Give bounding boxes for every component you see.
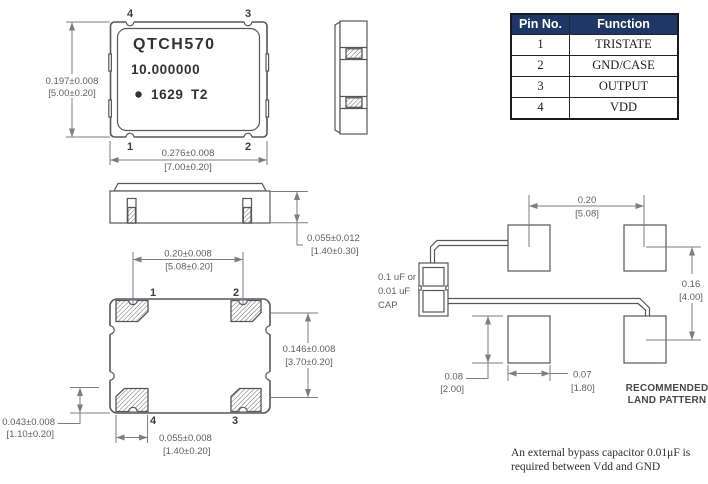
dim-mm: [5.08]	[575, 209, 599, 220]
pin-number-cell: 4	[512, 98, 570, 118]
pin-function-cell: VDD	[570, 98, 677, 118]
dim-top-view-height: 0.197±0.008 [5.00±0.20]	[46, 22, 110, 137]
pin-table-header-function: Function	[570, 15, 677, 35]
pin-function-cell: TRISTATE	[570, 35, 677, 56]
pin1-dot	[135, 91, 141, 97]
dim-mm: [4.00]	[679, 292, 703, 303]
pin-number-cell: 2	[512, 56, 570, 77]
notch	[110, 326, 114, 334]
dim-mm: [7.00±0.20]	[164, 162, 211, 173]
lid-flange	[335, 22, 340, 133]
notch	[110, 372, 114, 380]
dim-thickness: 0.055±0.012 [1.40±0.30]	[270, 192, 360, 258]
land-pattern: 0.1 uF or 0.01 uF CAP 0.20 [5.08] 0.16 […	[378, 195, 708, 406]
notch	[126, 133, 134, 137]
bottom-view: 1 2 4 3 0.20±0.008 [5.08±0.20] 0.146±0.0…	[2, 249, 337, 458]
trace-outline	[448, 304, 646, 317]
capacitor-label: CAP	[378, 300, 398, 311]
notch	[244, 133, 252, 137]
dim-inch: 0.197±0.008	[46, 76, 99, 87]
capacitor-label: 0.1 uF or	[378, 272, 416, 283]
dim-pad-height: 0.043±0.008 [1.10±0.20]	[2, 388, 110, 441]
marking-model: QTCH570	[133, 36, 216, 53]
marking-date-code: 1629	[151, 87, 183, 102]
pad-hatch	[346, 98, 362, 108]
top-view: QTCH570 10.000000 1629 T2 4 3 1 2 0.197±…	[46, 8, 269, 173]
notch	[126, 22, 134, 26]
dim-inch: 0.146±0.008	[283, 344, 336, 355]
dim-mm: [1.80]	[571, 383, 595, 394]
capacitor-label: 0.01 uF	[378, 286, 410, 297]
dim-mm: [5.08±0.20]	[165, 262, 212, 273]
pin-label: 1	[150, 287, 156, 299]
dim-top-view-width: 0.276±0.008 [7.00±0.20]	[110, 141, 267, 173]
dim-inch: 0.16	[682, 279, 701, 290]
lid-profile	[114, 184, 266, 192]
notch	[266, 100, 269, 117]
pin-label: 3	[232, 415, 238, 427]
dim-mm: [3.70±0.20]	[285, 357, 332, 368]
notch	[419, 286, 421, 290]
dim-inch: 0.043±0.008	[2, 417, 55, 428]
trace-outline	[431, 241, 509, 264]
dim-inch: 0.08	[445, 372, 464, 383]
notch	[239, 407, 247, 411]
notch	[266, 372, 270, 380]
pin-label: 2	[233, 287, 239, 299]
capacitor-pad	[423, 291, 444, 313]
notch	[244, 22, 252, 26]
trace-outline	[435, 246, 509, 264]
leader-line	[297, 223, 303, 245]
dim-mm: [2.00]	[440, 384, 464, 395]
dim-mm: [1.10±0.20]	[7, 429, 54, 440]
pin-label: 4	[127, 8, 134, 20]
pin-function-cell: GND/CASE	[570, 56, 677, 77]
leader-line	[466, 363, 488, 379]
bypass-note-line: required between Vdd and GND	[511, 460, 708, 474]
notch	[446, 286, 448, 290]
package-side	[340, 21, 367, 134]
dim-land-pad-width: 0.07 [1.80]	[508, 365, 595, 394]
land-pad	[508, 316, 550, 363]
notch	[109, 54, 112, 71]
land-pad	[624, 225, 666, 271]
marking-code: T2	[191, 87, 208, 102]
bypass-note-line: An external bypass capacitor 0.01μF is	[511, 446, 708, 460]
pad-hatch	[346, 49, 362, 59]
pin-table-header-pin: Pin No.	[512, 15, 570, 35]
land-pattern-title: LAND PATTERN	[628, 395, 707, 406]
notch	[109, 100, 112, 117]
dim-pad-width: 0.055±0.008 [1.40±0.20]	[116, 415, 212, 457]
pad-hatch	[243, 208, 251, 224]
trace-outline	[448, 299, 650, 317]
dim-pad-span-y: 0.146±0.008 [3.70±0.20]	[270, 313, 337, 398]
dim-inch: 0.276±0.008	[162, 148, 215, 159]
leader-line	[58, 413, 81, 424]
datasheet-page: QTCH570 10.000000 1629 T2 4 3 1 2 0.197±…	[0, 0, 708, 484]
notch	[266, 54, 269, 71]
pin-label: 3	[245, 8, 251, 20]
pad-hatch	[128, 208, 136, 224]
dim-inch: 0.20±0.008	[164, 249, 211, 260]
pin-table: Pin No. Function 1 TRISTATE 2 GND/CASE 3…	[510, 13, 679, 120]
dim-inch: 0.07	[573, 370, 592, 381]
pin-label: 1	[127, 141, 133, 153]
marking-frequency: 10.000000	[131, 62, 200, 77]
capacitor-pad	[423, 268, 444, 287]
bypass-note: An external bypass capacitor 0.01μF is r…	[511, 446, 708, 474]
pin-number-cell: 3	[512, 77, 570, 98]
dim-mm: [1.40±0.20]	[163, 446, 210, 457]
side-view-vertical	[335, 21, 367, 134]
side-view-horizontal: 0.055±0.012 [1.40±0.30]	[110, 184, 360, 258]
dim-mm: [5.00±0.20]	[48, 88, 95, 99]
pin-label: 4	[150, 415, 157, 427]
dim-mm: [1.40±0.30]	[311, 246, 358, 257]
pin-label: 2	[245, 141, 251, 153]
land-pattern-title: RECOMMENDED	[626, 383, 708, 394]
pin-number-cell: 1	[512, 35, 570, 56]
dim-inch: 0.20	[578, 195, 597, 206]
dim-land-pad-height: 0.08 [2.00]	[440, 316, 503, 395]
dim-inch: 0.055±0.012	[307, 233, 360, 244]
pin-function-cell: OUTPUT	[570, 77, 677, 98]
dim-inch: 0.055±0.008	[159, 433, 212, 444]
notch	[129, 407, 137, 411]
notch	[266, 326, 270, 334]
